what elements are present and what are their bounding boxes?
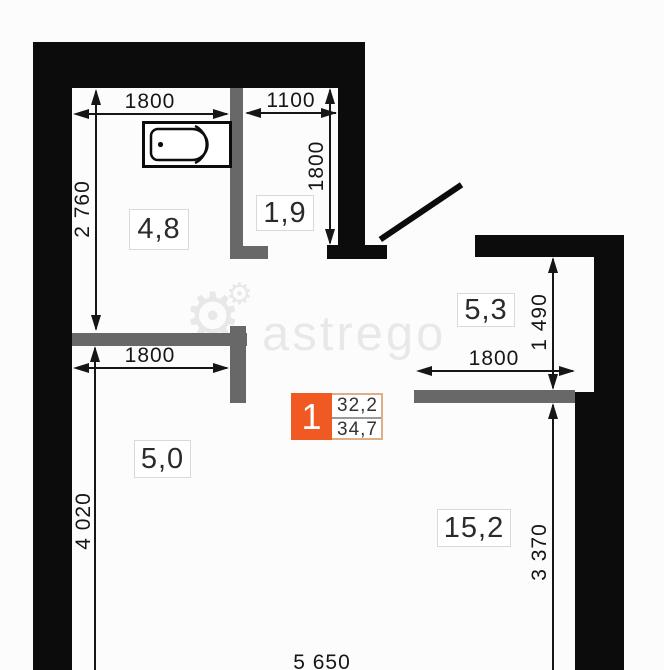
door-swing-line xyxy=(379,182,464,242)
dimension-label: 1800 xyxy=(469,347,520,371)
arrow-up-icon xyxy=(325,88,335,104)
partition-mid-vertical xyxy=(230,326,246,403)
arrow-down-icon xyxy=(325,229,335,245)
room-area-value: 5,0 xyxy=(141,443,184,476)
room-area-value: 15,2 xyxy=(444,512,504,545)
wall-right-lower xyxy=(575,392,624,670)
arrow-up-icon xyxy=(548,257,558,273)
dimension-label: 1 490 xyxy=(528,293,552,351)
arrow-down-icon xyxy=(91,315,101,331)
dimension-line xyxy=(552,259,554,388)
unit-badge: 1 32,2 34,7 xyxy=(291,393,383,440)
arrow-left-icon xyxy=(245,108,261,118)
unit-area-top: 32,2 xyxy=(332,395,381,419)
wall-top-right xyxy=(475,235,624,257)
arrow-up-icon xyxy=(90,346,100,362)
watermark-text: astrego xyxy=(262,306,446,362)
room-area-kitchen: 5,3 xyxy=(457,293,515,327)
wall-hallway-foot xyxy=(327,245,387,259)
unit-area-bottom: 34,7 xyxy=(332,419,381,441)
dimension-line xyxy=(552,405,554,670)
dimension-line xyxy=(329,90,331,243)
room-area-bathroom: 4,8 xyxy=(129,209,189,250)
arrow-right-icon xyxy=(213,109,229,119)
unit-areas: 32,2 34,7 xyxy=(332,393,383,440)
dimension-label: 4 020 xyxy=(72,492,96,550)
room-area-living-room: 15,2 xyxy=(437,509,511,547)
wall-top xyxy=(33,42,365,88)
bathtub-icon xyxy=(142,121,232,168)
room-area-value: 1,9 xyxy=(263,197,306,230)
partition-bathroom-right xyxy=(230,88,243,259)
arrow-left-icon xyxy=(73,109,89,119)
arrow-down-icon xyxy=(548,374,558,390)
partition-bathroom-stub xyxy=(243,246,268,259)
dimension-line xyxy=(95,91,97,329)
unit-number: 1 xyxy=(291,393,332,440)
dimension-label: 1800 xyxy=(125,344,176,368)
dimension-label: 5 650 xyxy=(293,651,351,670)
arrow-right-icon xyxy=(213,363,229,373)
partition-living-top xyxy=(414,390,575,403)
dimension-label: 1100 xyxy=(266,89,315,113)
arrow-up-icon xyxy=(548,403,558,419)
arrow-left-icon xyxy=(73,363,89,373)
room-area-value: 4,8 xyxy=(137,213,180,246)
wall-right-upper xyxy=(594,257,624,392)
arrow-right-icon xyxy=(559,366,575,376)
dimension-label: 3 370 xyxy=(528,523,552,581)
wall-hallway-right xyxy=(338,88,365,247)
gear-icon: ⚙ xyxy=(226,280,253,310)
arrow-up-icon xyxy=(91,89,101,105)
room-area-hallway: 1,9 xyxy=(256,195,314,231)
wall-left xyxy=(33,42,72,670)
arrow-left-icon xyxy=(416,366,432,376)
floor-plan: ⚙ ⚙ astrego 1800 1100 1800 xyxy=(0,0,664,670)
dimension-label: 1800 xyxy=(305,141,329,192)
room-area-value: 5,3 xyxy=(464,294,507,327)
room-area-corridor: 5,0 xyxy=(134,440,191,478)
dimension-label: 2 760 xyxy=(71,180,95,238)
dimension-label: 1800 xyxy=(125,90,176,114)
